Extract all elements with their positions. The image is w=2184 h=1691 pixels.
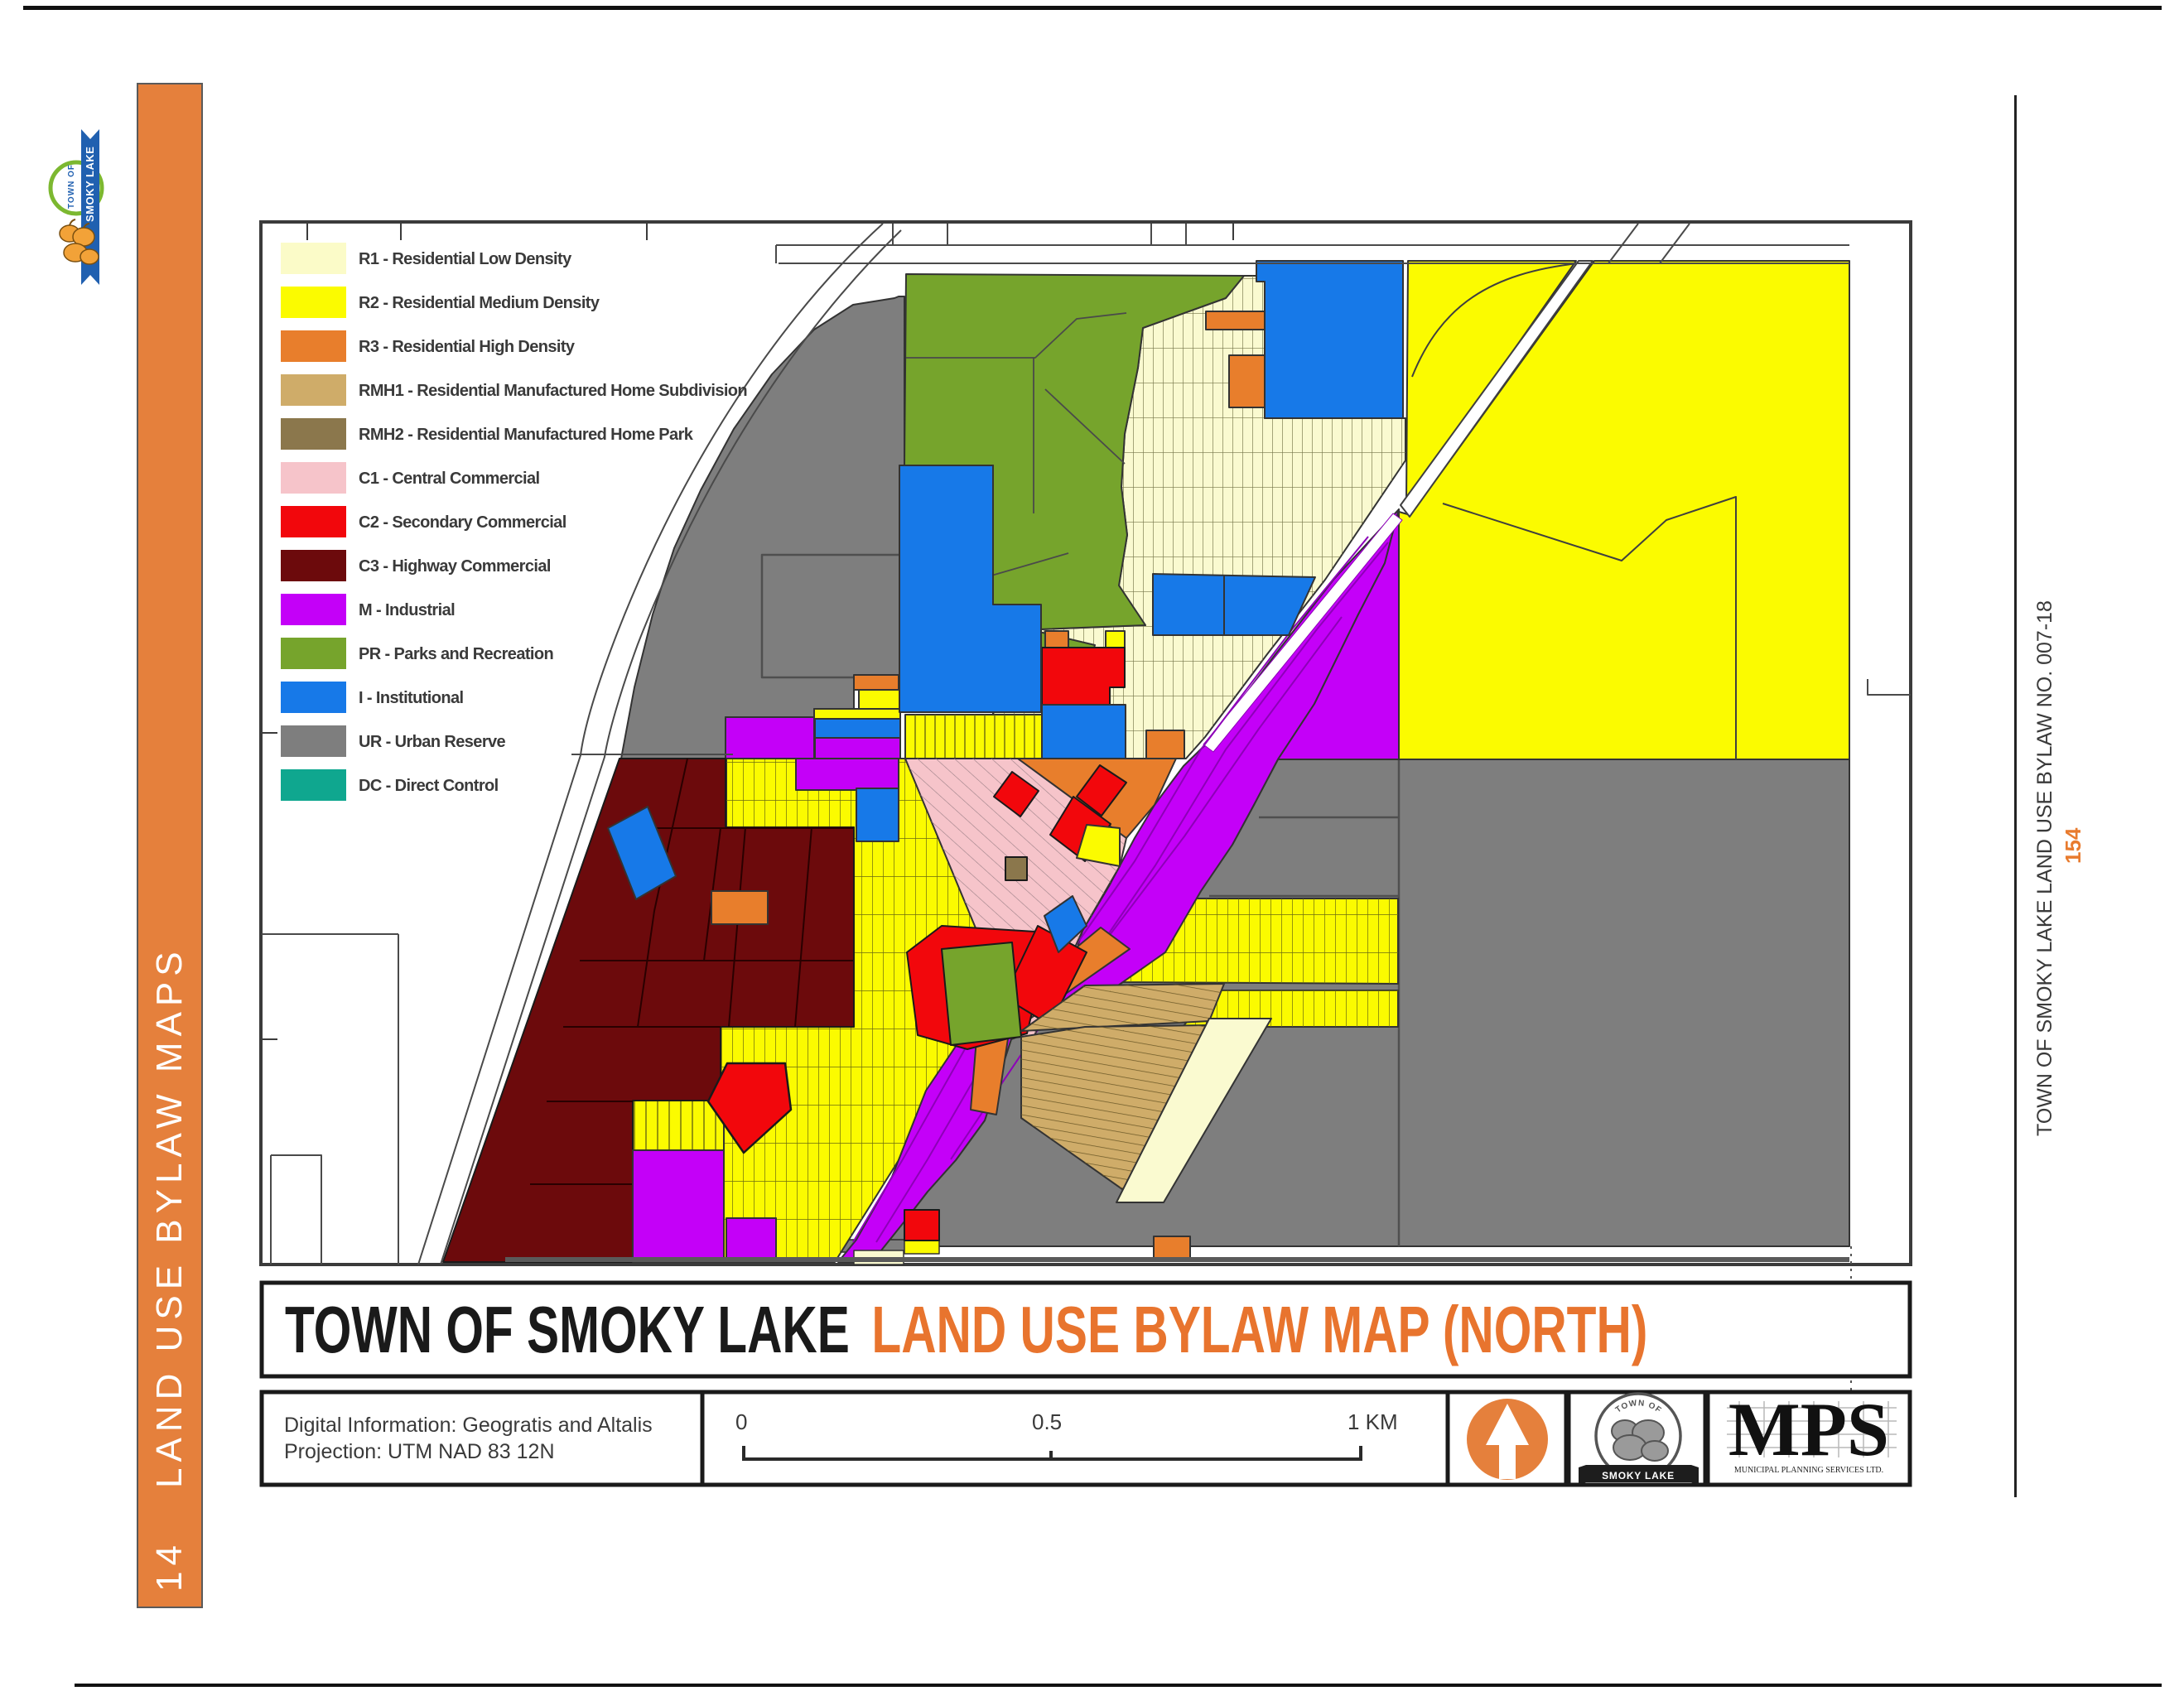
svg-text:C2 - Secondary Commercial: C2 - Secondary Commercial	[359, 513, 566, 532]
svg-text:M - Industrial: M - Industrial	[359, 601, 455, 619]
svg-text:TOWN OF SMOKY LAKE LAND USE BY: TOWN OF SMOKY LAKE LAND USE BYLAW NO. 00…	[2033, 600, 2056, 1136]
svg-text:MPS: MPS	[1728, 1387, 1889, 1472]
svg-text:SMOKY LAKE: SMOKY LAKE	[1602, 1470, 1675, 1481]
svg-text:TOWN OF SMOKY LAKE LAND USE BY: TOWN OF SMOKY LAKE LAND USE BYLAW MAP (N…	[285, 1293, 1647, 1366]
svg-text:C3 - Highway Commercial: C3 - Highway Commercial	[359, 557, 551, 576]
svg-text:C1 - Central Commercial: C1 - Central Commercial	[359, 470, 540, 488]
svg-text:R2 - Residential Medium Densit: R2 - Residential Medium Density	[359, 294, 600, 312]
svg-text:RMH2 - Residential Manufacture: RMH2 - Residential Manufactured Home Par…	[359, 426, 694, 444]
svg-text:PR - Parks and Recreation: PR - Parks and Recreation	[359, 645, 553, 663]
svg-text:1 KM: 1 KM	[1348, 1409, 1398, 1434]
svg-text:SMOKY LAKE: SMOKY LAKE	[84, 147, 96, 222]
svg-text:LAND USE BYLAW MAPS: LAND USE BYLAW MAPS	[149, 946, 190, 1488]
svg-text:Digital Information: Geogratis: Digital Information: Geogratis and Altal…	[284, 1414, 653, 1437]
svg-text:Projection: UTM NAD 83 12N: Projection: UTM NAD 83 12N	[284, 1440, 555, 1463]
svg-text:RMH1 - Residential Manufacture: RMH1 - Residential Manufactured Home Sub…	[359, 382, 747, 400]
svg-text:R1 - Residential Low Density: R1 - Residential Low Density	[359, 250, 572, 268]
svg-text:UR - Urban Reserve: UR - Urban Reserve	[359, 733, 506, 751]
svg-text:0: 0	[735, 1409, 747, 1434]
svg-text:154: 154	[2061, 827, 2085, 864]
svg-text:I - Institutional: I - Institutional	[359, 689, 463, 707]
svg-text:MUNICIPAL PLANNING SERVICES LT: MUNICIPAL PLANNING SERVICES LTD.	[1734, 1466, 1883, 1475]
svg-text:0.5: 0.5	[1032, 1409, 1062, 1434]
svg-text:TOWN OF: TOWN OF	[67, 164, 76, 209]
svg-text:R3 - Residential High Density: R3 - Residential High Density	[359, 338, 576, 356]
svg-text:14: 14	[149, 1539, 190, 1592]
svg-text:DC - Direct Control: DC - Direct Control	[359, 777, 499, 795]
